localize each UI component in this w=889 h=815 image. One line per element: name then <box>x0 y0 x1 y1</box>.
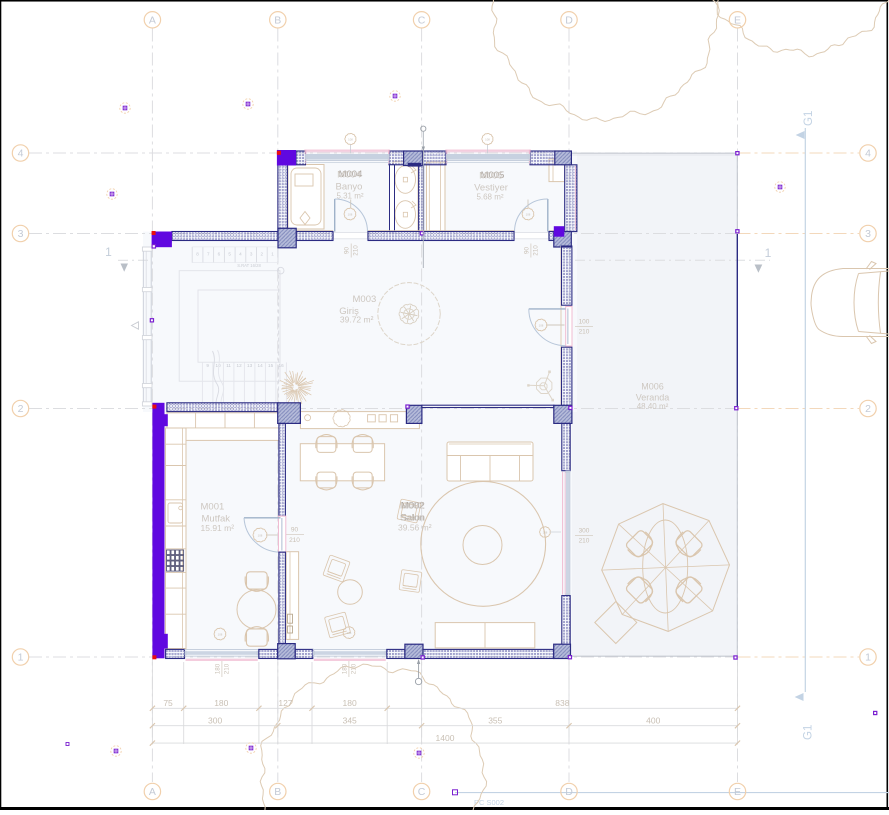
svg-text:1: 1 <box>105 245 112 259</box>
svg-text:345: 345 <box>343 715 357 725</box>
svg-text:14: 14 <box>258 363 264 368</box>
svg-text:48.40 m²: 48.40 m² <box>637 402 669 411</box>
svg-text:108: 108 <box>526 213 531 217</box>
svg-text:108: 108 <box>218 633 223 637</box>
svg-text:1400: 1400 <box>436 733 455 743</box>
svg-text:M001: M001 <box>201 502 225 513</box>
svg-text:108: 108 <box>348 138 353 142</box>
svg-text:E: E <box>734 14 741 26</box>
svg-text:4: 4 <box>865 148 871 160</box>
svg-text:M003: M003 <box>353 294 377 305</box>
svg-text:210: 210 <box>350 663 357 674</box>
svg-text:75: 75 <box>163 698 173 708</box>
svg-text:180: 180 <box>343 698 357 708</box>
svg-text:838: 838 <box>555 698 569 708</box>
svg-text:D: D <box>565 786 573 798</box>
svg-text:PC S002: PC S002 <box>474 798 504 807</box>
svg-text:7: 7 <box>207 251 210 256</box>
svg-text:15: 15 <box>268 363 274 368</box>
svg-text:B: B <box>274 786 281 798</box>
svg-text:1: 1 <box>18 652 24 664</box>
svg-text:D: D <box>565 14 573 26</box>
svg-text:3: 3 <box>865 228 871 240</box>
svg-text:M006: M006 <box>641 382 664 392</box>
svg-text:3: 3 <box>18 228 24 240</box>
svg-text:90: 90 <box>523 247 530 255</box>
svg-text:C: C <box>418 14 426 26</box>
svg-text:3: 3 <box>250 251 253 256</box>
svg-text:B: B <box>274 14 281 26</box>
svg-text:M005: M005 <box>479 171 503 182</box>
svg-text:5.68 m²: 5.68 m² <box>476 193 503 202</box>
svg-text:13: 13 <box>247 363 253 368</box>
svg-text:90: 90 <box>291 527 299 534</box>
svg-text:2: 2 <box>18 403 24 415</box>
svg-text:11: 11 <box>226 363 231 368</box>
svg-text:1: 1 <box>865 652 871 664</box>
svg-text:M004: M004 <box>337 170 361 181</box>
svg-text:2: 2 <box>865 403 871 415</box>
svg-text:1: 1 <box>271 251 274 256</box>
svg-text:9: 9 <box>206 363 209 368</box>
svg-text:4: 4 <box>18 148 24 160</box>
svg-text:108: 108 <box>543 531 548 535</box>
svg-text:39.72 m²: 39.72 m² <box>340 315 374 325</box>
svg-text:E: E <box>734 786 741 798</box>
svg-text:15.91 m²: 15.91 m² <box>201 523 235 533</box>
svg-text:1: 1 <box>765 246 772 260</box>
svg-text:210: 210 <box>289 537 300 544</box>
svg-text:210: 210 <box>353 245 360 256</box>
svg-text:12: 12 <box>237 363 243 368</box>
svg-text:180: 180 <box>341 663 348 674</box>
svg-text:6: 6 <box>218 251 221 256</box>
svg-text:S.RAT 16/28: S.RAT 16/28 <box>237 263 261 268</box>
svg-text:180: 180 <box>214 698 228 708</box>
svg-text:2: 2 <box>261 251 264 256</box>
svg-text:A: A <box>149 14 156 26</box>
svg-text:100: 100 <box>579 318 590 325</box>
svg-text:355: 355 <box>488 715 502 725</box>
svg-text:C: C <box>418 786 426 798</box>
svg-text:210: 210 <box>579 329 590 336</box>
svg-text:A: A <box>149 786 156 798</box>
svg-text:210: 210 <box>532 245 539 256</box>
svg-text:300: 300 <box>208 715 222 725</box>
svg-text:108: 108 <box>258 534 263 538</box>
svg-text:8: 8 <box>196 251 199 256</box>
svg-text:108: 108 <box>539 324 544 328</box>
svg-text:M002: M002 <box>400 501 424 512</box>
svg-text:210: 210 <box>579 538 590 545</box>
svg-text:127: 127 <box>278 698 292 708</box>
svg-text:108: 108 <box>485 138 490 142</box>
svg-text:90: 90 <box>344 247 351 255</box>
svg-text:108: 108 <box>347 631 352 635</box>
svg-text:400: 400 <box>646 715 660 725</box>
svg-text:G1: G1 <box>803 111 815 126</box>
svg-text:210: 210 <box>223 663 230 674</box>
svg-text:108: 108 <box>348 213 353 217</box>
svg-text:G1: G1 <box>803 725 815 740</box>
svg-text:300: 300 <box>579 527 590 534</box>
svg-text:180: 180 <box>214 663 221 674</box>
svg-text:5.31 m²: 5.31 m² <box>336 192 363 201</box>
svg-text:16: 16 <box>279 363 285 368</box>
svg-text:39.56 m²: 39.56 m² <box>398 523 432 533</box>
svg-text:5: 5 <box>228 251 231 256</box>
svg-text:4: 4 <box>239 251 242 256</box>
